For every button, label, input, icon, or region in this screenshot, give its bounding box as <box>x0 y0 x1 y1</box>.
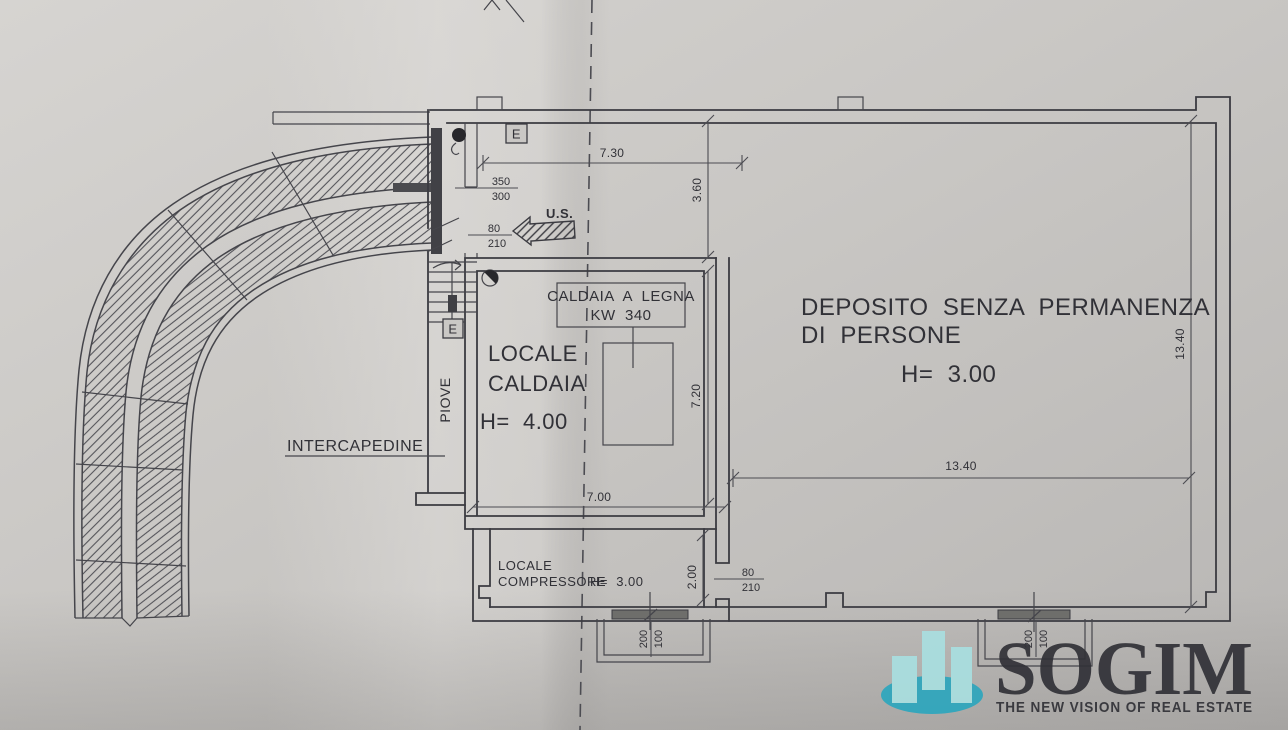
caldaia-name-line2: CALDAIA <box>488 371 586 396</box>
electrical-box-1-label: E <box>512 127 521 142</box>
sogim-watermark: SOGIM THE NEW VISION OF REAL ESTATE <box>881 627 1253 716</box>
dim-door-exit-h: 210 <box>488 238 506 250</box>
dim-deposito-depth: 13.40 <box>1173 328 1187 360</box>
floor-plan-photo: E E 7.30 3.60 7.20 7.00 13.40 13.40 2.00… <box>0 0 1288 730</box>
dim-upper-depth: 3.60 <box>690 178 704 203</box>
brand-tagline: THE NEW VISION OF REAL ESTATE <box>996 699 1253 716</box>
logo-bar-right <box>951 647 972 703</box>
caldaia-height: H= 4.00 <box>480 409 568 434</box>
caldaia-name-line1: LOCALE <box>488 341 578 366</box>
dim-window-compressore-w: 200 <box>638 630 650 648</box>
dim-compressore-depth: 2.00 <box>685 565 699 590</box>
boiler-label-line2: KW 340 <box>590 307 651 324</box>
compressore-height: H= 3.00 <box>590 574 644 589</box>
dim-upper-width: 7.30 <box>600 146 625 160</box>
deposito-name-line2: DI PERSONE <box>801 322 961 349</box>
exit-label: U.S. <box>546 206 573 221</box>
dim-door-exit-w: 80 <box>488 223 500 235</box>
dim-caldaia-width: 7.00 <box>587 490 612 504</box>
intercapedine-label: INTERCAPEDINE <box>287 438 423 455</box>
logo-bar-middle <box>922 631 945 690</box>
dim-door-deposito-h: 210 <box>742 582 760 594</box>
wall-poche-bar-top <box>393 183 433 192</box>
piove-label: PIOVE <box>437 377 453 422</box>
dim-deposito-width: 13.40 <box>945 459 977 473</box>
dim-caldaia-depth: 7.20 <box>689 384 703 409</box>
deposito-name-line1: DEPOSITO SENZA PERMANENZA <box>801 294 1210 321</box>
dim-door-deposito-w: 80 <box>742 567 754 579</box>
electrical-box-2-label: E <box>448 322 457 337</box>
stair-post <box>448 295 457 312</box>
boiler-label-line1: CALDAIA A LEGNA <box>547 288 695 305</box>
compressore-name-line1: LOCALE <box>498 558 552 573</box>
column-dot-symbol <box>452 128 466 142</box>
dim-window-compressore-h: 100 <box>653 630 665 648</box>
deposito-height: H= 3.00 <box>901 361 996 388</box>
logo-bar-left <box>892 656 917 703</box>
dim-opening-h: 300 <box>492 191 510 203</box>
wall-poche-bar-shaft <box>431 128 442 254</box>
dim-opening-w: 350 <box>492 176 510 188</box>
